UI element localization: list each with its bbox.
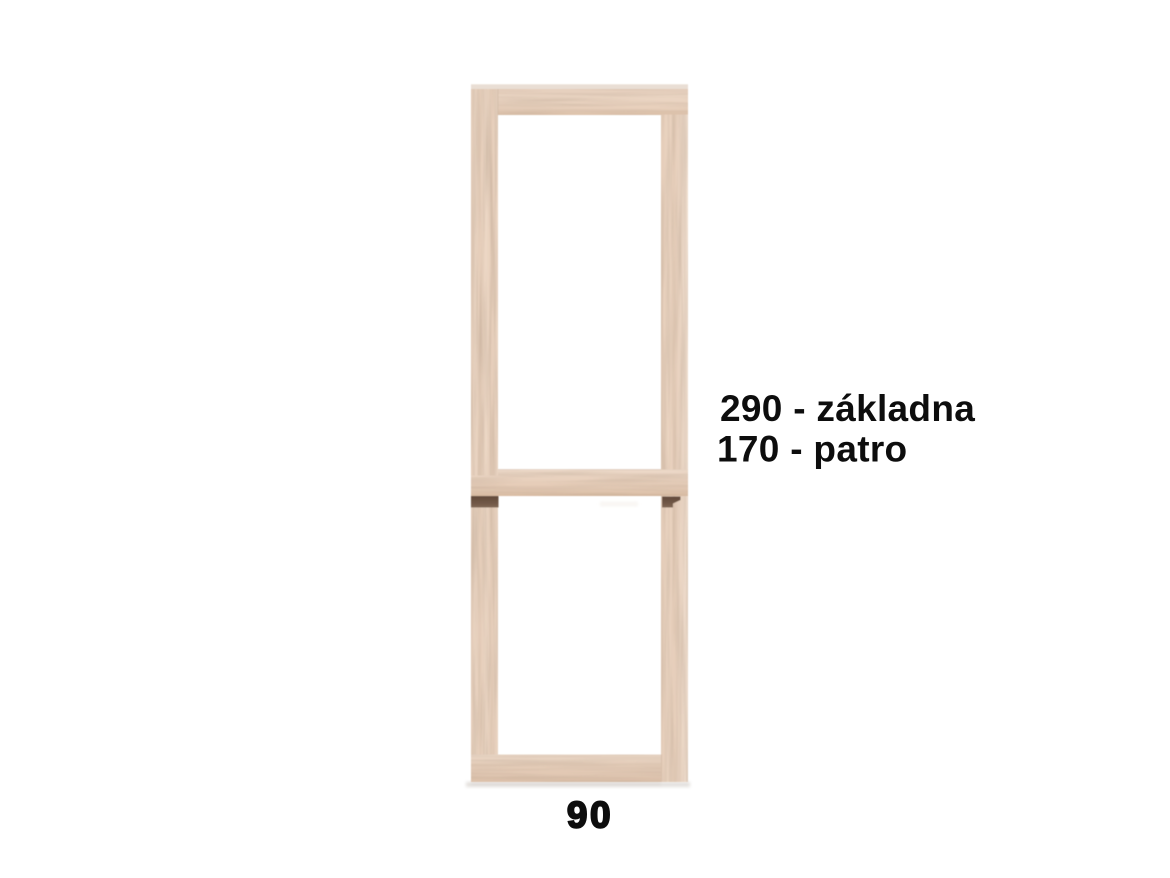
svg-text:170 - patro: 170 - patro	[717, 429, 907, 470]
svg-text:90: 90	[567, 795, 613, 836]
svg-text:290 - základna: 290 - základna	[720, 388, 975, 429]
